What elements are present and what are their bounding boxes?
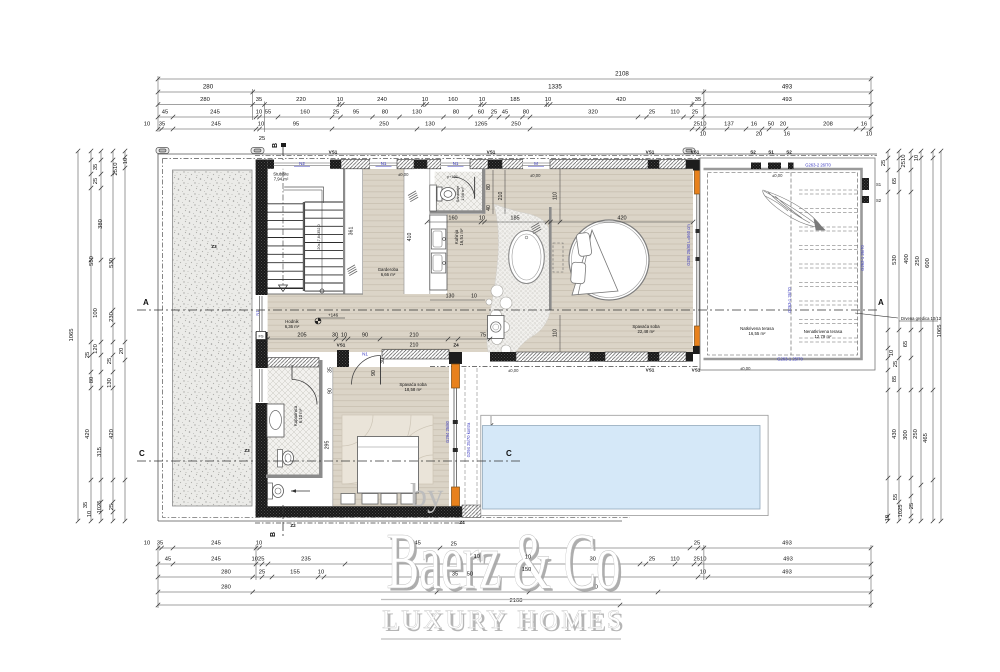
svg-text:25: 25	[491, 110, 497, 116]
svg-text:Z3: Z3	[244, 448, 250, 453]
svg-text:1025: 1025	[97, 501, 103, 514]
svg-text:185: 185	[510, 97, 520, 103]
svg-text:30: 30	[380, 358, 386, 364]
svg-text:VS1: VS1	[487, 150, 496, 155]
svg-text:10: 10	[889, 350, 895, 356]
svg-text:±0,00: ±0,00	[740, 366, 751, 371]
svg-text:35: 35	[159, 122, 165, 128]
svg-text:160: 160	[448, 216, 457, 222]
svg-text:245: 245	[211, 541, 221, 547]
svg-text:20x17,6=352,0: 20x17,6=352,0	[317, 224, 321, 249]
svg-text:20: 20	[119, 348, 125, 354]
svg-text:137: 137	[724, 122, 734, 128]
svg-text:25: 25	[259, 570, 265, 576]
svg-text:80: 80	[523, 110, 529, 116]
svg-text:493: 493	[782, 97, 792, 103]
svg-text:1265: 1265	[475, 122, 488, 128]
svg-text:210: 210	[410, 343, 419, 349]
svg-text:20: 20	[756, 132, 762, 138]
svg-text:25: 25	[694, 541, 700, 547]
svg-text:80: 80	[453, 110, 459, 116]
svg-text:G263-1 25/70: G263-1 25/70	[777, 357, 803, 362]
svg-text:10: 10	[318, 570, 324, 576]
svg-text:18,58 m²: 18,58 m²	[405, 387, 423, 392]
svg-text:S2: S2	[786, 150, 792, 155]
svg-text:10: 10	[258, 122, 264, 128]
svg-text:p+135: p+135	[447, 175, 458, 179]
svg-text:35: 35	[695, 97, 701, 103]
svg-text:25: 25	[649, 110, 655, 116]
svg-text:12,79 m²: 12,79 m²	[815, 334, 833, 339]
svg-text:320: 320	[588, 110, 598, 116]
svg-text:110: 110	[553, 192, 559, 200]
svg-text:380: 380	[98, 219, 104, 229]
svg-text:10: 10	[341, 333, 347, 339]
svg-text:25: 25	[692, 110, 698, 116]
svg-text:493: 493	[782, 570, 792, 576]
svg-text:7,94 m²: 7,94 m²	[274, 177, 289, 182]
svg-text:FS: FS	[258, 334, 263, 339]
svg-text:150: 150	[522, 567, 531, 573]
svg-text:493: 493	[782, 84, 793, 91]
svg-text:280: 280	[221, 570, 231, 576]
svg-text:C: C	[506, 449, 512, 458]
svg-text:25: 25	[893, 361, 899, 367]
svg-text:90: 90	[362, 333, 368, 339]
svg-text:S1: S1	[768, 150, 774, 155]
svg-text:6,66 m²: 6,66 m²	[381, 272, 396, 277]
svg-text:25: 25	[881, 160, 887, 166]
svg-text:50: 50	[768, 122, 774, 128]
svg-text:10: 10	[545, 97, 551, 103]
svg-text:50: 50	[467, 571, 473, 577]
svg-text:25: 25	[109, 504, 115, 510]
svg-text:315: 315	[97, 447, 103, 457]
svg-text:45: 45	[162, 110, 168, 116]
svg-text:25: 25	[333, 110, 339, 116]
svg-text:25: 25	[451, 541, 457, 547]
svg-text:55: 55	[265, 110, 271, 116]
svg-text:45: 45	[502, 110, 508, 116]
svg-text:16: 16	[861, 122, 867, 128]
svg-text:A: A	[143, 298, 149, 307]
svg-text:B: B	[272, 143, 279, 148]
svg-text:10: 10	[471, 294, 477, 300]
svg-text:430: 430	[892, 429, 898, 439]
svg-text:280: 280	[200, 97, 210, 103]
svg-text:1065: 1065	[69, 329, 75, 342]
svg-text:35: 35	[328, 367, 334, 373]
svg-text:VS1: VS1	[646, 368, 655, 373]
svg-text:25: 25	[649, 557, 655, 563]
svg-text:130: 130	[446, 294, 455, 300]
svg-text:25: 25	[93, 178, 99, 184]
svg-text:25: 25	[85, 352, 91, 358]
svg-text:10: 10	[87, 511, 93, 517]
svg-text:10: 10	[422, 97, 428, 103]
svg-text:6,36 m²: 6,36 m²	[285, 324, 300, 329]
svg-text:80: 80	[486, 184, 492, 190]
svg-text:1065: 1065	[937, 325, 943, 338]
svg-text:22,48 m²: 22,48 m²	[638, 329, 656, 334]
svg-text:208: 208	[823, 122, 833, 128]
svg-text:95: 95	[293, 122, 299, 128]
svg-text:45: 45	[165, 557, 171, 563]
svg-text:2510: 2510	[694, 122, 707, 128]
svg-text:361: 361	[349, 227, 355, 236]
svg-text:B: B	[270, 532, 277, 537]
svg-text:N1: N1	[255, 310, 260, 316]
svg-text:N1: N1	[362, 352, 368, 357]
svg-text:S2: S2	[750, 150, 756, 155]
svg-text:20: 20	[780, 122, 786, 128]
svg-text:G263-1 26/70: G263-1 26/70	[787, 287, 792, 313]
svg-text:220: 220	[296, 97, 306, 103]
svg-text:10: 10	[479, 97, 485, 103]
svg-text:95: 95	[353, 110, 359, 116]
svg-text:250: 250	[379, 122, 389, 128]
svg-text:280: 280	[203, 84, 214, 91]
svg-text:210: 210	[498, 192, 504, 201]
svg-text:VS1: VS1	[329, 150, 338, 155]
svg-text:35: 35	[83, 502, 89, 508]
svg-text:1335: 1335	[548, 84, 562, 91]
svg-text:100: 100	[93, 308, 99, 318]
svg-text:16,55 m²: 16,55 m²	[749, 331, 767, 336]
svg-text:A: A	[878, 298, 884, 307]
svg-text:G295 25/80 L=560 cm: G295 25/80 L=560 cm	[686, 224, 691, 266]
svg-text:420: 420	[616, 97, 626, 103]
svg-text:130: 130	[107, 378, 113, 388]
svg-text:25: 25	[909, 503, 915, 509]
svg-text:C: C	[139, 449, 145, 458]
svg-text:±0,00: ±0,00	[772, 173, 783, 178]
svg-text:6,10 m²: 6,10 m²	[298, 408, 303, 423]
svg-text:G262-1 26/70: G262-1 26/70	[860, 245, 865, 271]
svg-text:205: 205	[297, 333, 306, 339]
svg-text:16: 16	[784, 132, 790, 138]
svg-text:80: 80	[89, 377, 95, 383]
svg-text:10: 10	[256, 541, 262, 547]
svg-text:420: 420	[85, 429, 91, 439]
svg-text:10: 10	[123, 158, 129, 164]
svg-text:10: 10	[866, 132, 872, 138]
svg-text:110: 110	[553, 329, 559, 337]
svg-text:10: 10	[479, 216, 485, 222]
svg-text:VS1: VS1	[646, 150, 655, 155]
svg-text:465: 465	[923, 433, 929, 443]
svg-text:Z2: Z2	[290, 523, 296, 528]
svg-text:110: 110	[670, 110, 679, 116]
svg-text:Drvena gredica 10/12: Drvena gredica 10/12	[901, 316, 942, 321]
svg-text:by: by	[411, 478, 445, 514]
svg-text:245: 245	[211, 122, 221, 128]
svg-text:±0,00: ±0,00	[398, 172, 409, 177]
svg-text:130: 130	[412, 110, 422, 116]
svg-text:420: 420	[617, 216, 626, 222]
svg-text:230: 230	[109, 312, 115, 322]
svg-text:280: 280	[221, 585, 231, 591]
svg-text:10: 10	[474, 554, 480, 560]
svg-text:16,51 m²: 16,51 m²	[459, 228, 464, 246]
svg-text:10: 10	[337, 97, 343, 103]
svg-text:40: 40	[486, 205, 492, 211]
svg-text:410: 410	[407, 233, 413, 242]
svg-text:245: 245	[210, 110, 220, 116]
svg-text:85: 85	[892, 376, 898, 382]
svg-text:235: 235	[301, 557, 311, 563]
svg-text:240: 240	[377, 97, 387, 103]
svg-text:±0,00: ±0,00	[530, 173, 541, 178]
svg-text:16: 16	[751, 122, 757, 128]
svg-text:530: 530	[892, 255, 898, 265]
svg-text:60: 60	[478, 110, 484, 116]
svg-text:120: 120	[93, 344, 99, 354]
svg-text:10: 10	[525, 555, 531, 561]
svg-text:±0,00: ±0,00	[508, 368, 519, 373]
svg-text:2510: 2510	[901, 155, 907, 168]
svg-text:10: 10	[700, 570, 706, 576]
svg-text:600: 600	[925, 258, 931, 268]
svg-text:N2: N2	[299, 161, 305, 166]
svg-text:110: 110	[670, 557, 679, 563]
svg-text:295: 295	[325, 441, 331, 450]
svg-text:185: 185	[510, 216, 519, 222]
svg-text:VS1: VS1	[337, 343, 346, 348]
svg-text:55: 55	[893, 494, 899, 500]
svg-text:Baerz & Co: Baerz & Co	[387, 516, 621, 606]
svg-text:493: 493	[782, 541, 792, 547]
svg-text:10: 10	[256, 110, 262, 116]
svg-text:G294 25/80: G294 25/80	[445, 420, 450, 443]
svg-text:250: 250	[913, 429, 919, 439]
svg-text:400: 400	[904, 254, 910, 264]
svg-text:10: 10	[700, 132, 706, 138]
svg-text:35: 35	[93, 164, 99, 170]
svg-text:N1: N1	[453, 161, 459, 166]
svg-text:Z4: Z4	[453, 343, 459, 348]
svg-text:10: 10	[144, 122, 150, 128]
svg-text:1,98 m²: 1,98 m²	[460, 187, 465, 201]
svg-text:VS1: VS1	[691, 150, 700, 155]
svg-text:245: 245	[211, 557, 221, 563]
svg-text:160: 160	[300, 110, 310, 116]
svg-text:+146: +146	[328, 313, 339, 318]
svg-text:Z3: Z3	[211, 244, 217, 249]
svg-text:35: 35	[452, 571, 458, 577]
svg-text:VS1: VS1	[692, 368, 701, 373]
svg-text:65: 65	[892, 178, 898, 184]
svg-text:2108: 2108	[615, 71, 629, 78]
svg-text:210: 210	[409, 333, 418, 339]
svg-text:250: 250	[915, 256, 921, 266]
svg-text:300: 300	[903, 430, 909, 440]
svg-text:35: 35	[157, 541, 163, 547]
svg-text:25: 25	[259, 136, 265, 142]
svg-text:155: 155	[290, 570, 300, 576]
svg-text:10: 10	[144, 541, 150, 547]
svg-text:160: 160	[448, 97, 458, 103]
svg-text:30: 30	[590, 557, 596, 563]
svg-text:75: 75	[480, 333, 486, 339]
svg-text:65: 65	[903, 341, 909, 347]
svg-text:1025: 1025	[898, 505, 904, 518]
svg-text:420: 420	[109, 429, 115, 439]
svg-text:30: 30	[332, 333, 338, 339]
svg-text:G294 25/70 kontra: G294 25/70 kontra	[466, 422, 471, 457]
svg-text:90: 90	[328, 388, 334, 394]
svg-text:80: 80	[382, 110, 388, 116]
svg-text:250: 250	[511, 122, 521, 128]
svg-text:2510: 2510	[694, 557, 707, 563]
svg-text:530: 530	[109, 258, 115, 268]
svg-text:90: 90	[371, 370, 377, 376]
svg-text:M: M	[534, 161, 538, 166]
svg-text:493: 493	[783, 557, 793, 563]
svg-text:S1: S1	[876, 182, 882, 187]
svg-text:S2: S2	[876, 198, 882, 203]
svg-text:G263-2 26/70: G263-2 26/70	[805, 163, 831, 168]
svg-text:25: 25	[107, 358, 113, 364]
svg-text:130: 130	[425, 122, 435, 128]
svg-text:N1: N1	[381, 161, 387, 166]
svg-text:35: 35	[256, 97, 262, 103]
